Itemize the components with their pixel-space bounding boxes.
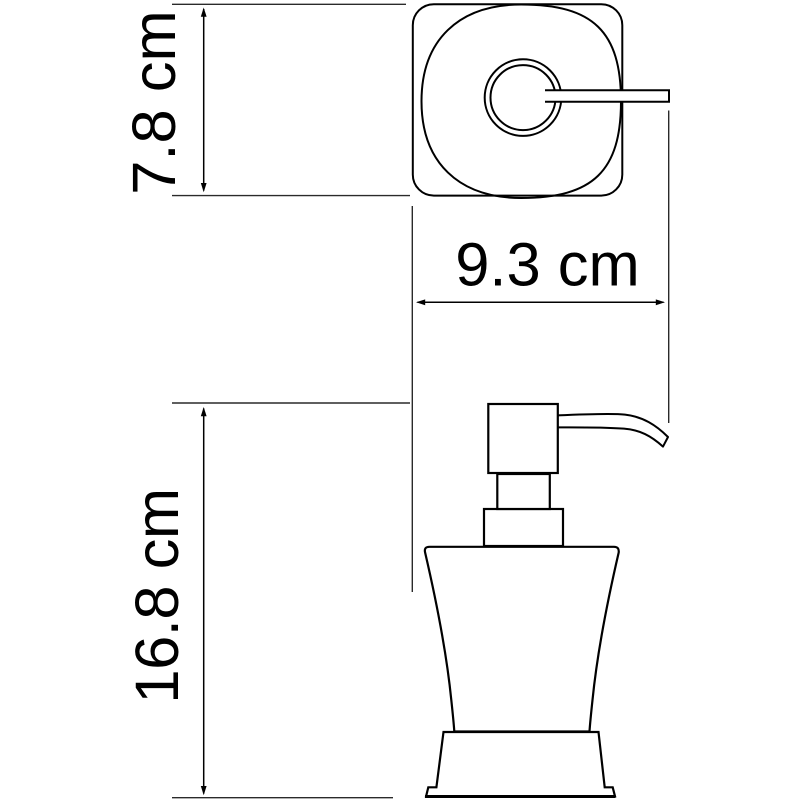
svg-text:16.8 cm: 16.8 cm — [123, 488, 192, 703]
svg-text:7.8 cm: 7.8 cm — [120, 10, 189, 195]
svg-text:9.3 cm: 9.3 cm — [455, 231, 640, 300]
